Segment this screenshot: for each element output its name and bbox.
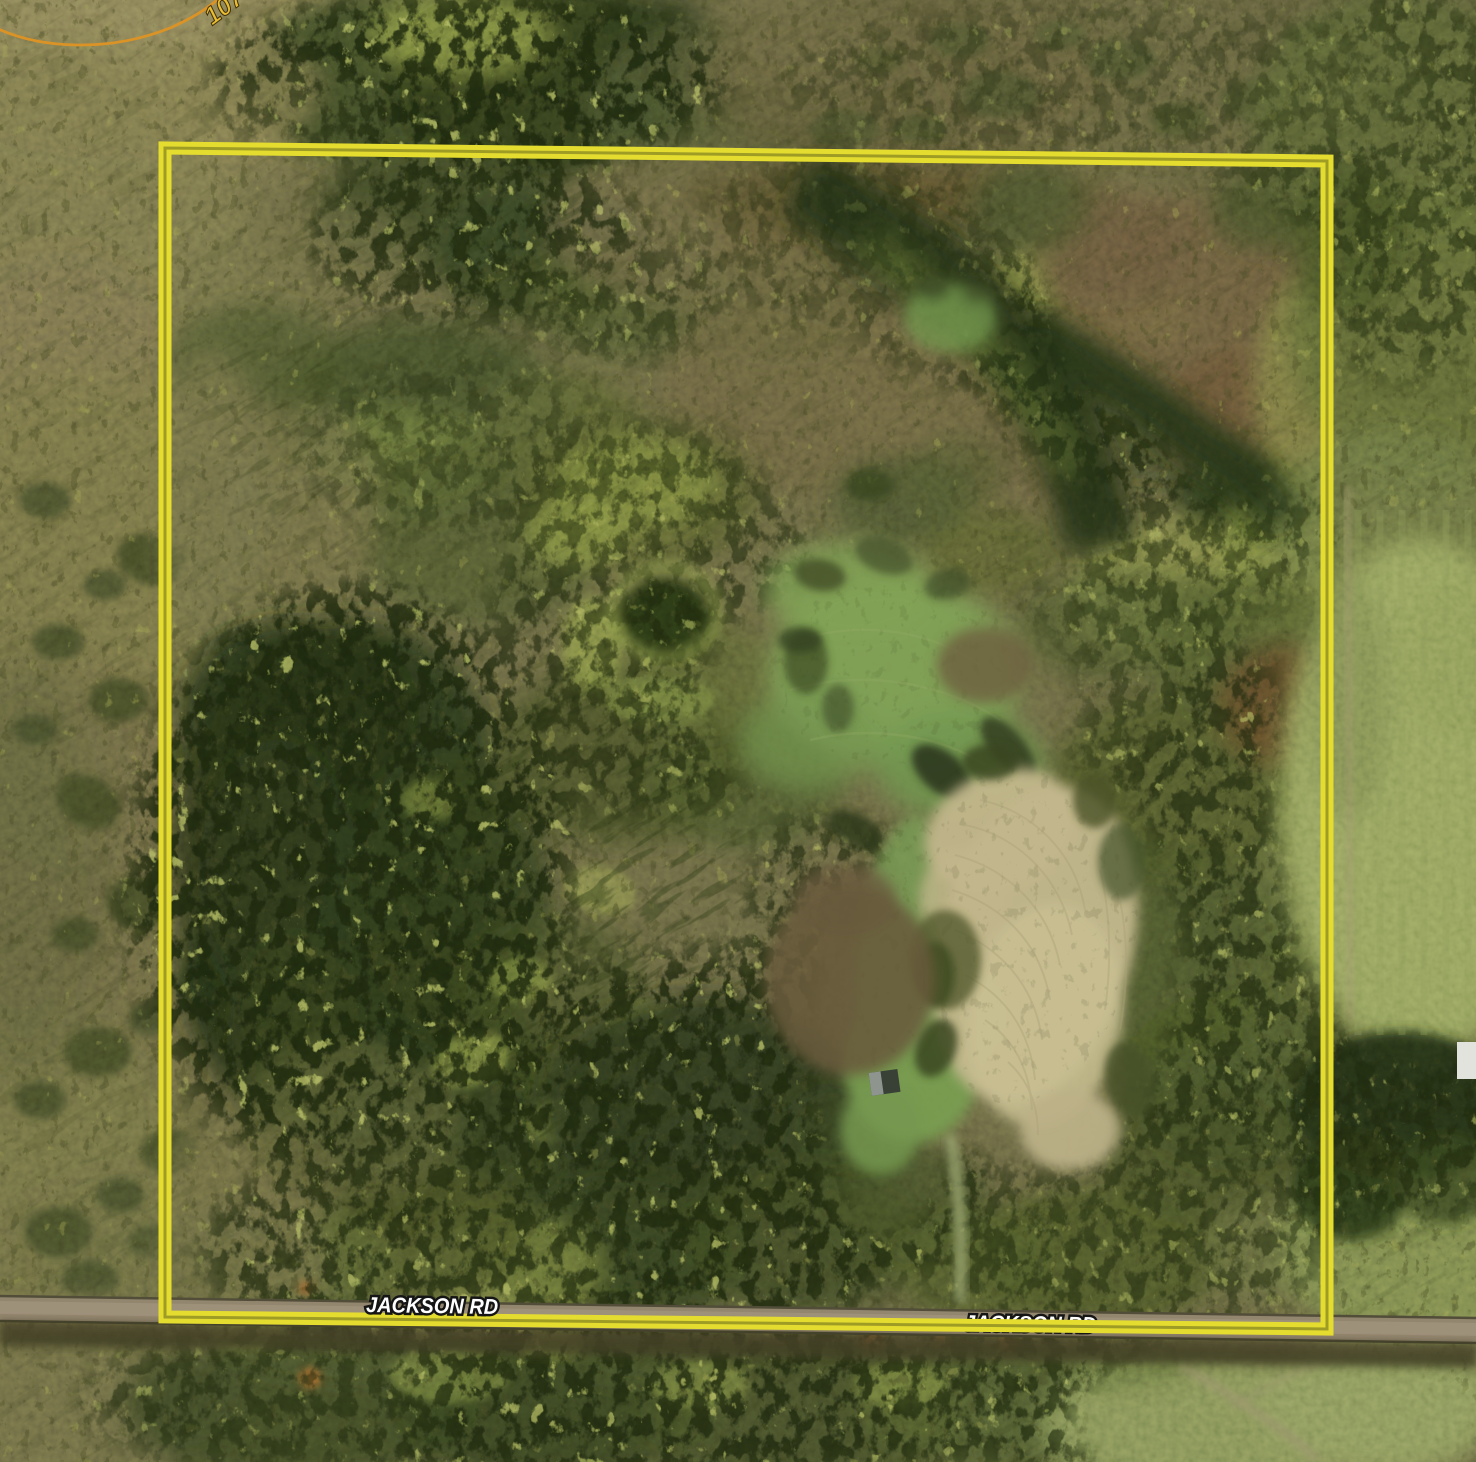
svg-text:JACKSON RD: JACKSON RD <box>366 1293 498 1319</box>
